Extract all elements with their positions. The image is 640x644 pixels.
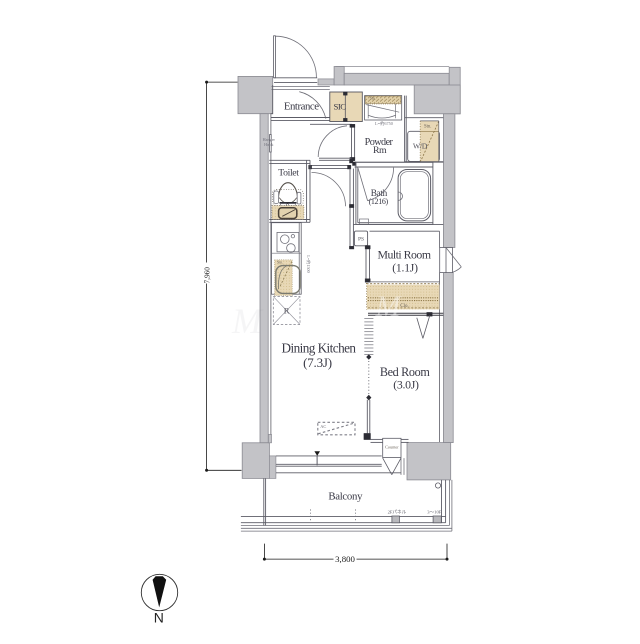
svg-text:L=約1500: L=約1500	[305, 255, 312, 272]
svg-text:Sto.: Sto.	[277, 261, 283, 265]
svg-text:N: N	[154, 609, 164, 625]
svg-text:AC: AC	[320, 424, 326, 429]
svg-text:Hook: Hook	[264, 142, 274, 147]
svg-text:Clo.: Clo.	[400, 304, 408, 309]
svg-text:PS: PS	[358, 236, 364, 242]
svg-text:Toilet: Toilet	[278, 168, 299, 179]
svg-text:(1.1J): (1.1J)	[392, 261, 418, 274]
svg-text:Rm: Rm	[373, 145, 387, 156]
svg-text:(7.3J): (7.3J)	[303, 355, 332, 370]
svg-text:L=約6750: L=約6750	[375, 120, 393, 127]
svg-text:3〜10F: 3〜10F	[427, 510, 441, 515]
svg-text:M: M	[375, 290, 403, 323]
svg-text:Sto.: Sto.	[370, 96, 376, 100]
svg-text:Entrance: Entrance	[284, 100, 319, 112]
svg-text:Multi Room: Multi Room	[377, 247, 430, 261]
svg-text:Balcony: Balcony	[328, 491, 363, 503]
svg-text:Counter: Counter	[385, 444, 399, 449]
svg-text:(1216): (1216)	[369, 197, 389, 206]
svg-text:(3.0J): (3.0J)	[393, 377, 419, 391]
svg-text:M: M	[231, 301, 264, 341]
svg-text:Stn.: Stn.	[424, 125, 431, 130]
svg-text:R: R	[284, 305, 290, 315]
svg-text:Dining Kitchen: Dining Kitchen	[282, 340, 357, 355]
svg-text:7,960: 7,960	[202, 267, 211, 284]
svg-text:W/D: W/D	[413, 142, 428, 151]
svg-text:SIC: SIC	[333, 101, 346, 111]
svg-text:3,800: 3,800	[335, 554, 355, 564]
